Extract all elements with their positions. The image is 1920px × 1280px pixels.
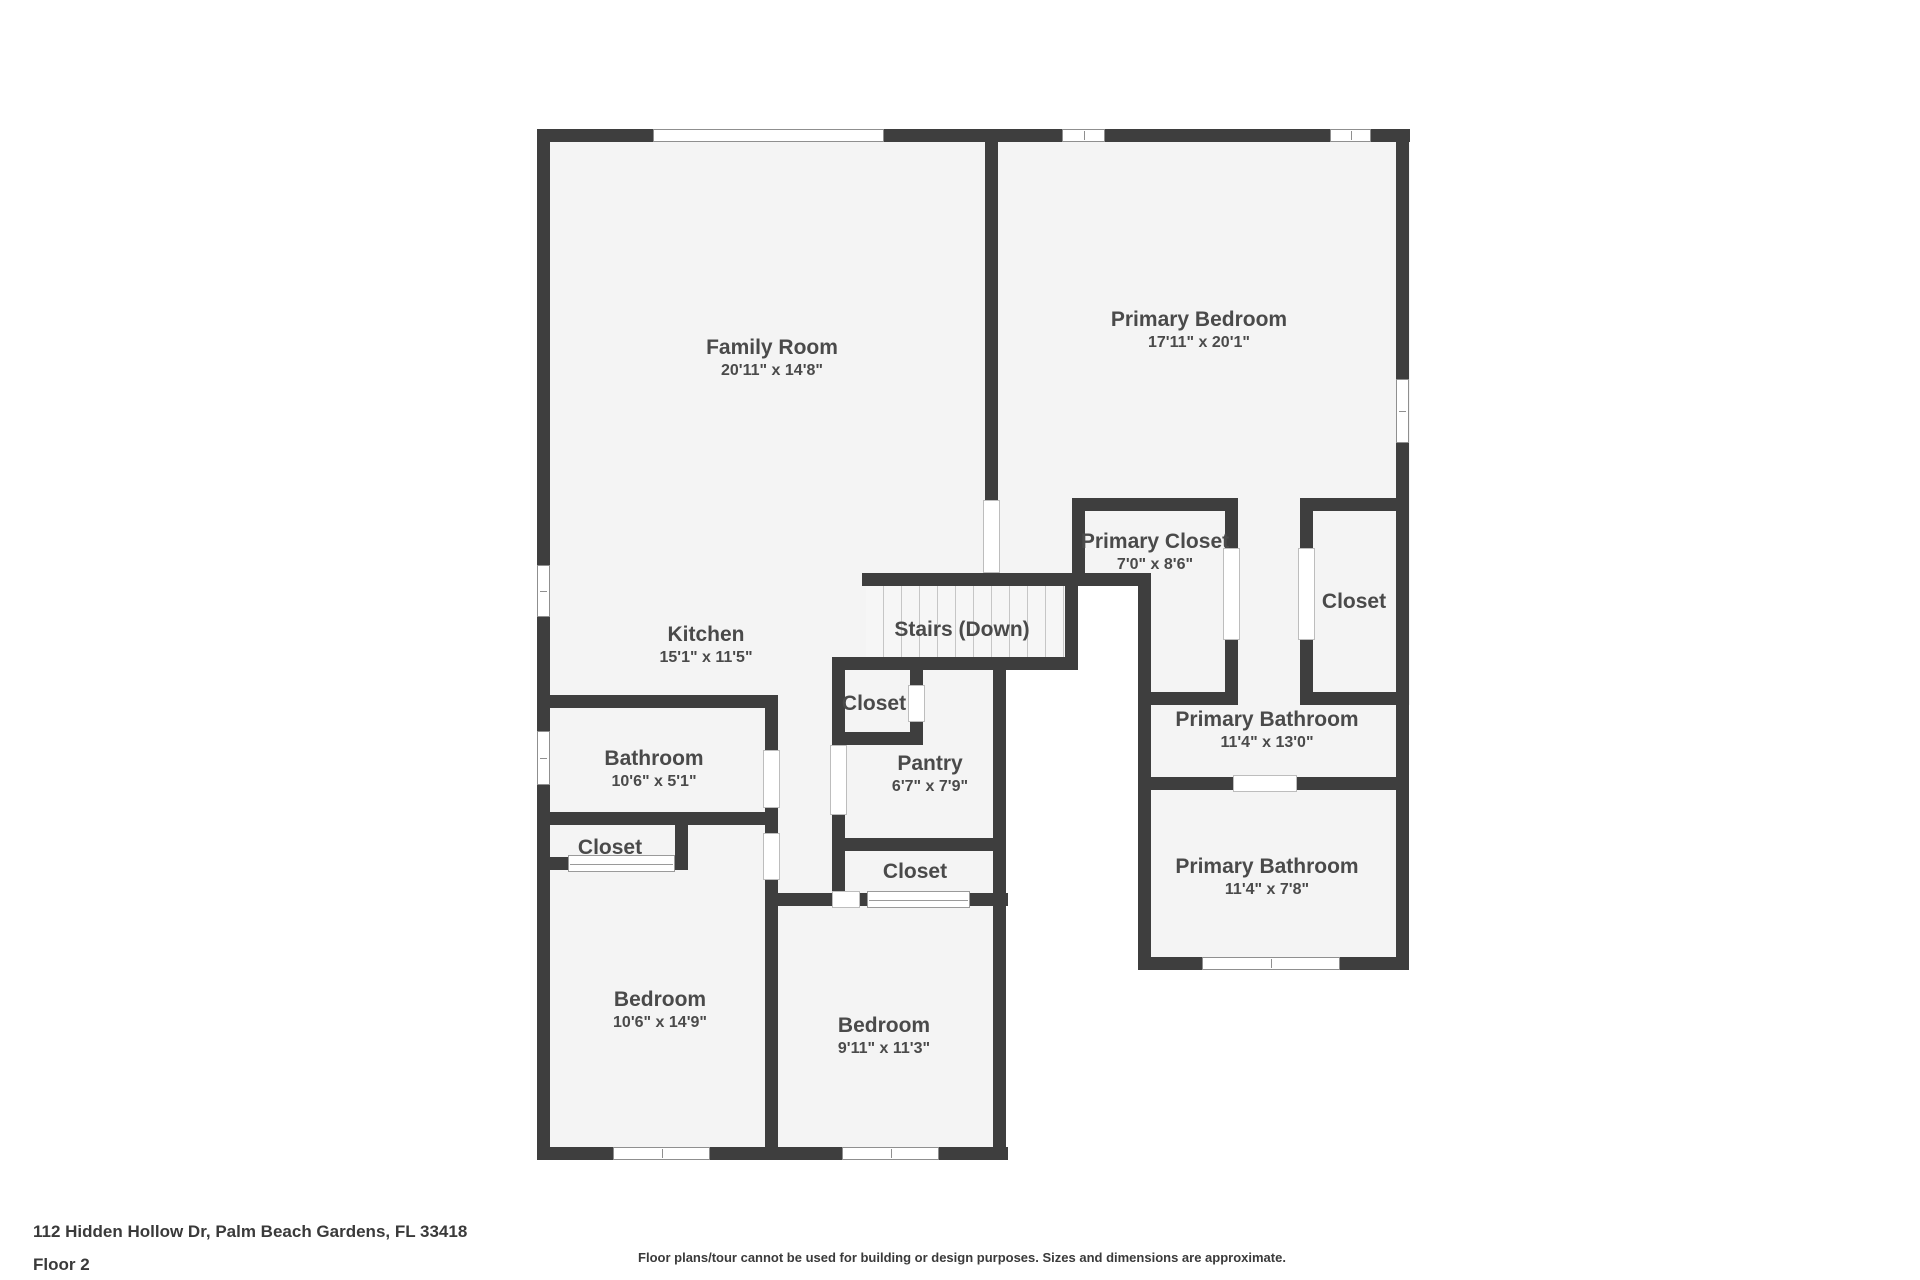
room-name: Family Room (706, 335, 838, 361)
room-dims: 15'1" x 11'5" (659, 648, 752, 668)
room-name: Primary Bathroom (1175, 854, 1358, 880)
disclaimer-text: Floor plans/tour cannot be used for buil… (638, 1250, 1286, 1265)
wall (765, 880, 778, 1147)
room-dims: 9'11" x 11'3" (838, 1039, 930, 1059)
wall (910, 722, 923, 745)
wall (1300, 498, 1409, 511)
wall (985, 129, 998, 500)
room-name: Closet (578, 835, 642, 861)
wall (778, 893, 832, 906)
room-name: Primary Bathroom (1175, 707, 1358, 733)
room-label-closet-bedroom-left: Closet (578, 835, 642, 861)
floor-plan-page: { "colors": { "wall": "#3e3e3e", "floor"… (0, 0, 1920, 1280)
wall (1300, 498, 1313, 548)
wall (832, 657, 1078, 670)
wall (1072, 498, 1238, 511)
room-label-pantry: Pantry 6'7" x 7'9" (892, 751, 968, 797)
wall (993, 670, 1006, 1160)
wall (1138, 692, 1238, 705)
room-label-primary-bathroom-lower: Primary Bathroom 11'4" x 7'8" (1175, 854, 1358, 900)
room-name: Closet (842, 691, 906, 717)
window (537, 565, 550, 617)
void-center (1006, 670, 1138, 1160)
room-label-stairs-down: Stairs (Down) (894, 617, 1029, 643)
door-opening (763, 833, 780, 880)
room-dims: 6'7" x 7'9" (892, 777, 968, 797)
room-label-bedroom-left: Bedroom 10'6" x 14'9" (613, 987, 707, 1033)
room-label-closet-bedroom-mid: Closet (883, 859, 947, 885)
room-dims: 10'6" x 14'9" (613, 1013, 707, 1033)
wall (1065, 573, 1078, 670)
wall (1300, 692, 1409, 705)
wall (765, 695, 778, 750)
door-opening (1298, 548, 1315, 640)
door-opening (1233, 775, 1297, 792)
window (1330, 129, 1371, 142)
room-dims: 20'11" x 14'8" (721, 361, 823, 381)
window (537, 731, 550, 785)
room-label-primary-bedroom: Primary Bedroom 17'11" x 20'1" (1111, 307, 1287, 353)
wall (1297, 777, 1409, 790)
door-opening (832, 891, 860, 908)
room-name: Bathroom (604, 746, 703, 772)
door-opening (908, 685, 925, 722)
room-name: Bedroom (838, 1013, 930, 1039)
floor-plan-canvas: Family Room 20'11" x 14'8" Primary Bedro… (0, 0, 1920, 1280)
wall (1396, 129, 1409, 970)
door-opening (763, 750, 780, 808)
wall (970, 893, 1008, 906)
window (653, 129, 884, 142)
room-dims: 11'4" x 13'0" (1220, 733, 1313, 753)
room-label-family-room: Family Room 20'11" x 14'8" (706, 335, 838, 381)
room-dims: 17'11" x 20'1" (1148, 333, 1250, 353)
room-dims: 7'0" x 8'6" (1117, 555, 1193, 575)
door-opening (983, 500, 1000, 573)
wall (1138, 777, 1233, 790)
room-label-closet-right: Closet (1322, 589, 1386, 615)
room-dims: 10'6" x 5'1" (611, 772, 696, 792)
room-label-closet-hall: Closet (842, 691, 906, 717)
room-name: Closet (883, 859, 947, 885)
room-name: Primary Closet (1081, 529, 1229, 555)
wall (537, 812, 778, 825)
door-opening (830, 745, 847, 815)
window (1396, 379, 1409, 443)
wall (1138, 573, 1151, 970)
window (1202, 957, 1340, 970)
window (613, 1147, 710, 1160)
room-name: Bedroom (614, 987, 706, 1013)
wall (537, 129, 550, 1160)
room-label-primary-bathroom-upper: Primary Bathroom 11'4" x 13'0" (1175, 707, 1358, 753)
room-dims: 11'4" x 7'8" (1225, 880, 1309, 900)
room-name: Stairs (Down) (894, 617, 1029, 643)
room-name: Pantry (897, 751, 962, 777)
wall (910, 670, 923, 685)
room-label-primary-closet: Primary Closet 7'0" x 8'6" (1081, 529, 1229, 575)
wall (537, 695, 778, 708)
room-name: Closet (1322, 589, 1386, 615)
window (842, 1147, 939, 1160)
room-label-bathroom: Bathroom 10'6" x 5'1" (604, 746, 703, 792)
room-label-bedroom-mid: Bedroom 9'11" x 11'3" (838, 1013, 930, 1059)
room-name: Primary Bedroom (1111, 307, 1287, 333)
window (1062, 129, 1105, 142)
room-label-kitchen: Kitchen 15'1" x 11'5" (659, 622, 752, 668)
wall (832, 838, 1006, 851)
closet-opening (867, 891, 970, 908)
floor-label: Floor 2 (33, 1255, 90, 1275)
wall (537, 857, 568, 870)
address-text: 112 Hidden Hollow Dr, Palm Beach Gardens… (33, 1222, 467, 1242)
wall (675, 825, 688, 870)
room-name: Kitchen (667, 622, 744, 648)
